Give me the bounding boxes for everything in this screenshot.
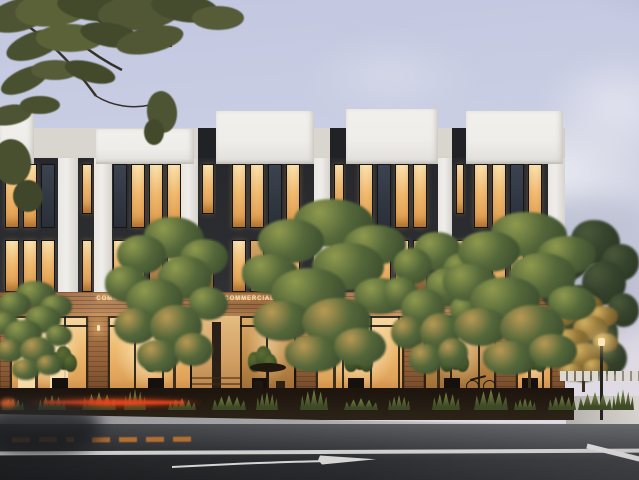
motion-blurred-car — [0, 404, 100, 452]
pavement-arrow — [170, 451, 410, 471]
scene: COMMERCIAL COMMERCIAL #1 COMMERCIAL #2 C… — [0, 0, 639, 480]
taillight-streak-core — [44, 401, 184, 404]
orange-road-dashes — [0, 0, 639, 480]
orange-dash — [92, 437, 192, 443]
